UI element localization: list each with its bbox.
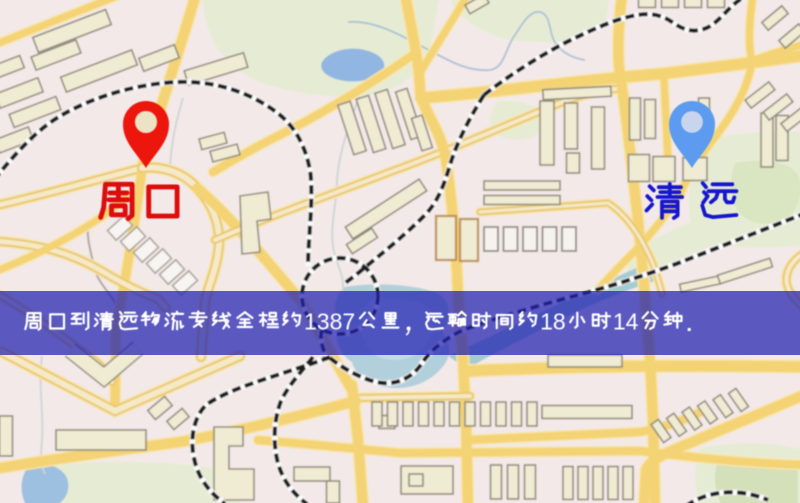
svg-text:14: 14 [613,309,639,335]
svg-text:18: 18 [540,309,566,335]
svg-text:1387: 1387 [304,309,355,335]
